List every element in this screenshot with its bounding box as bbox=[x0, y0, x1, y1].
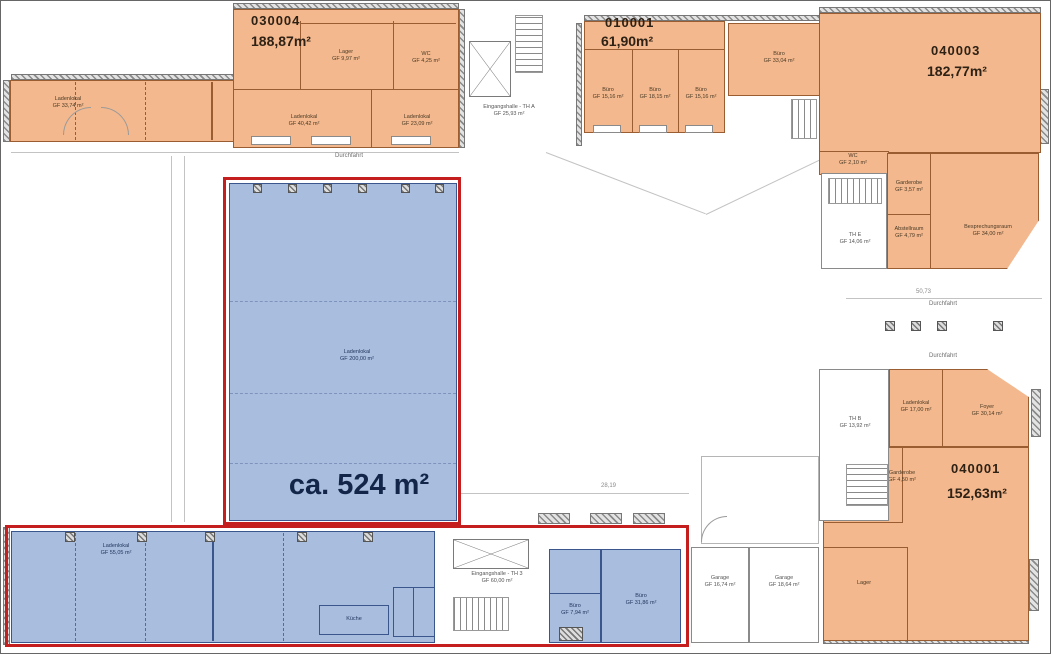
room-label: LagerGF 9,97 m² bbox=[316, 49, 376, 63]
room-label: AbstellraumGF 4,79 m² bbox=[889, 226, 929, 240]
column-marker bbox=[911, 321, 921, 331]
passage-label: Durchfahrt bbox=[929, 301, 957, 307]
unit-area-label: 152,63m² bbox=[947, 485, 1007, 501]
stair-icon bbox=[828, 178, 882, 204]
dimension-line bbox=[171, 156, 172, 522]
room-label: WCGF 2,10 m² bbox=[821, 153, 885, 167]
unit-region-040001-upper: LadenlokalGF 17,00 m² FoyerGF 30,14 m² bbox=[889, 369, 1029, 447]
stair-icon bbox=[515, 15, 543, 73]
room-label: FoyerGF 30,14 m² bbox=[952, 404, 1022, 418]
window bbox=[251, 136, 291, 145]
unit-id-label: 010001 bbox=[605, 15, 654, 30]
partition-line bbox=[300, 21, 301, 89]
partition-line bbox=[584, 49, 725, 50]
unit-region-040003-lower: GarderobeGF 3,57 m² AbstellraumGF 4,79 m… bbox=[887, 153, 1039, 269]
room-label: Eingangshalle - TH AGF 25,93 m² bbox=[469, 104, 549, 118]
dimension-line bbox=[11, 152, 459, 153]
unit-id-label: 040001 bbox=[951, 461, 1000, 476]
unit-id-label: 040003 bbox=[931, 43, 980, 58]
room-label: GarageGF 16,74 m² bbox=[693, 575, 747, 589]
partition-line bbox=[678, 49, 679, 133]
partition-line bbox=[930, 154, 931, 270]
garage-room bbox=[691, 547, 749, 643]
dimension-label: 28,19 bbox=[601, 483, 616, 489]
wall-hatch bbox=[459, 9, 465, 148]
partition-line bbox=[942, 370, 943, 448]
elevator-icon bbox=[469, 41, 511, 97]
room-label: BüroGF 18,15 m² bbox=[634, 87, 676, 101]
garage-room bbox=[749, 547, 819, 643]
stair-core-th-b: TH BGF 13,92 m² bbox=[819, 369, 889, 521]
dimension-label: 50,73 bbox=[916, 289, 931, 295]
partition-line bbox=[824, 522, 903, 523]
column-marker bbox=[937, 321, 947, 331]
window bbox=[391, 136, 431, 145]
partition-line bbox=[632, 49, 633, 133]
unit-region-040003 bbox=[819, 13, 1041, 153]
partition-line bbox=[902, 448, 903, 522]
unit-area-label: 61,90m² bbox=[601, 33, 653, 49]
wall-hatch bbox=[1031, 389, 1041, 437]
wall-hatch bbox=[590, 513, 622, 524]
partition-line bbox=[233, 89, 459, 90]
room-label: BesprechungsraumGF 34,00 m² bbox=[938, 224, 1038, 238]
room-label: Lager bbox=[832, 580, 896, 587]
column-marker bbox=[885, 321, 895, 331]
column-marker bbox=[993, 321, 1003, 331]
room-label: LadenlokalGF 40,42 m² bbox=[259, 114, 349, 128]
room-label: GarderobeGF 3,57 m² bbox=[889, 180, 929, 194]
floor-plan: LadenlokalGF 33,74 m² 030004 188,87m² La… bbox=[0, 0, 1051, 654]
wall-hatch bbox=[3, 80, 10, 142]
passage-label: Durchfahrt bbox=[929, 353, 957, 359]
room-label: WCGF 4,25 m² bbox=[401, 51, 451, 65]
room-label: LadenlokalGF 33,74 m² bbox=[23, 96, 113, 110]
roof-outline-line bbox=[546, 152, 706, 214]
partition-line bbox=[371, 89, 372, 148]
room-label: BüroGF 15,16 m² bbox=[587, 87, 629, 101]
room-label: BüroGF 33,04 m² bbox=[751, 51, 807, 65]
partition-line bbox=[300, 23, 456, 24]
unit-id-label: 030004 bbox=[251, 13, 300, 28]
partition-line bbox=[211, 82, 213, 140]
partition-line bbox=[824, 547, 907, 548]
dimension-line bbox=[846, 298, 1042, 299]
window bbox=[639, 125, 667, 133]
window bbox=[311, 136, 351, 145]
window bbox=[685, 125, 713, 133]
partition-line bbox=[907, 547, 908, 642]
window bbox=[593, 125, 621, 133]
dimension-line bbox=[461, 493, 689, 494]
room-label: TH EGF 14,06 m² bbox=[826, 232, 884, 246]
room-label: LadenlokalGF 17,00 m² bbox=[890, 400, 942, 414]
wall-hatch bbox=[538, 513, 570, 524]
unit-area-label: 188,87m² bbox=[251, 33, 311, 49]
stair-core-th-e: TH EGF 14,06 m² bbox=[821, 173, 887, 269]
room-label: GarageGF 18,64 m² bbox=[753, 575, 815, 589]
partition-line bbox=[888, 214, 930, 215]
wall-hatch bbox=[576, 23, 582, 146]
partition-line bbox=[145, 82, 146, 140]
wall-hatch bbox=[633, 513, 665, 524]
stair-icon bbox=[791, 99, 817, 139]
red-outline-south bbox=[5, 525, 689, 647]
dimension-line bbox=[184, 156, 185, 522]
stair-icon bbox=[846, 464, 888, 506]
room-label: TH BGF 13,92 m² bbox=[826, 416, 884, 430]
roof-outline-line bbox=[706, 154, 832, 215]
partition-line bbox=[393, 21, 394, 89]
room-label: LadenlokalGF 23,09 m² bbox=[386, 114, 448, 128]
unit-area-label: 182,77m² bbox=[927, 63, 987, 79]
red-outline-hall bbox=[223, 177, 461, 525]
passage-label: Durchfahrt bbox=[335, 153, 363, 159]
wall-hatch bbox=[1029, 559, 1039, 611]
room-label: BüroGF 15,16 m² bbox=[680, 87, 722, 101]
